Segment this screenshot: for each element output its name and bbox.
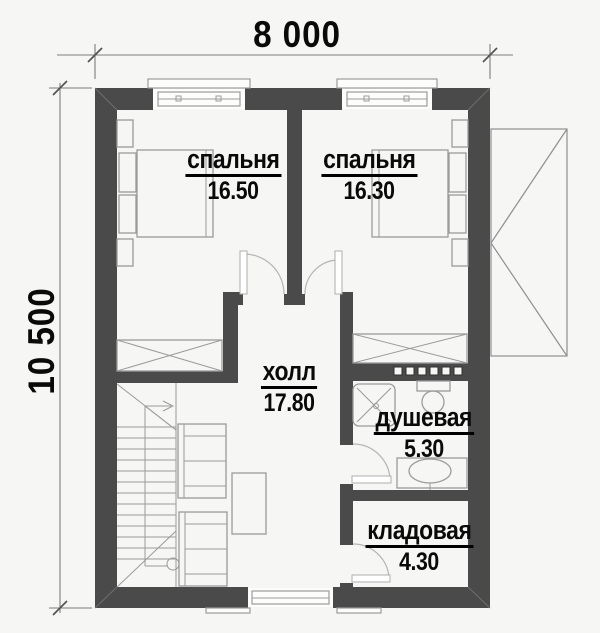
room-name: душевая (374, 404, 474, 435)
roof-outline (491, 129, 567, 356)
room-label-hall: холл 17.80 (219, 358, 359, 418)
dimension-height-label: 10 500 (21, 251, 61, 431)
room-label-storage: кладовая 4.30 (349, 517, 489, 577)
nightstand (452, 120, 468, 147)
wardrobe-bedroom-1 (117, 340, 222, 371)
sofa-1 (178, 424, 226, 498)
coffee-table (232, 473, 266, 534)
door-bedroom-2 (305, 251, 342, 294)
room-label-bedroom-1: спальня 16.50 (160, 146, 306, 206)
staircase (117, 383, 179, 587)
room-name: спальня (185, 146, 281, 177)
room-label-bedroom-2: спальня 16.30 (296, 146, 442, 206)
nightstand (117, 120, 133, 147)
nightstand (452, 239, 468, 266)
dimension-width-label: 8 000 (207, 14, 387, 56)
room-area: 16.50 (171, 177, 295, 206)
floor-plan-drawing (0, 0, 600, 633)
room-area: 17.80 (230, 389, 349, 418)
room-area: 16.30 (307, 177, 431, 206)
sofa-2 (179, 512, 227, 586)
room-area: 5.30 (365, 435, 484, 464)
nightstand (117, 239, 133, 266)
window-top-left (148, 79, 250, 109)
wardrobe-bedroom-2 (353, 334, 467, 363)
window-top-right (337, 79, 437, 109)
room-name: холл (261, 358, 317, 389)
room-area: 4.30 (360, 548, 479, 577)
floor-plan: 8 000 10 500 спальня 16.50 спальня 16.30… (0, 0, 600, 633)
door-bedroom-1 (240, 251, 284, 294)
room-name: спальня (321, 146, 417, 177)
room-label-shower: душевая 5.30 (354, 404, 494, 464)
room-name: кладовая (365, 517, 473, 548)
